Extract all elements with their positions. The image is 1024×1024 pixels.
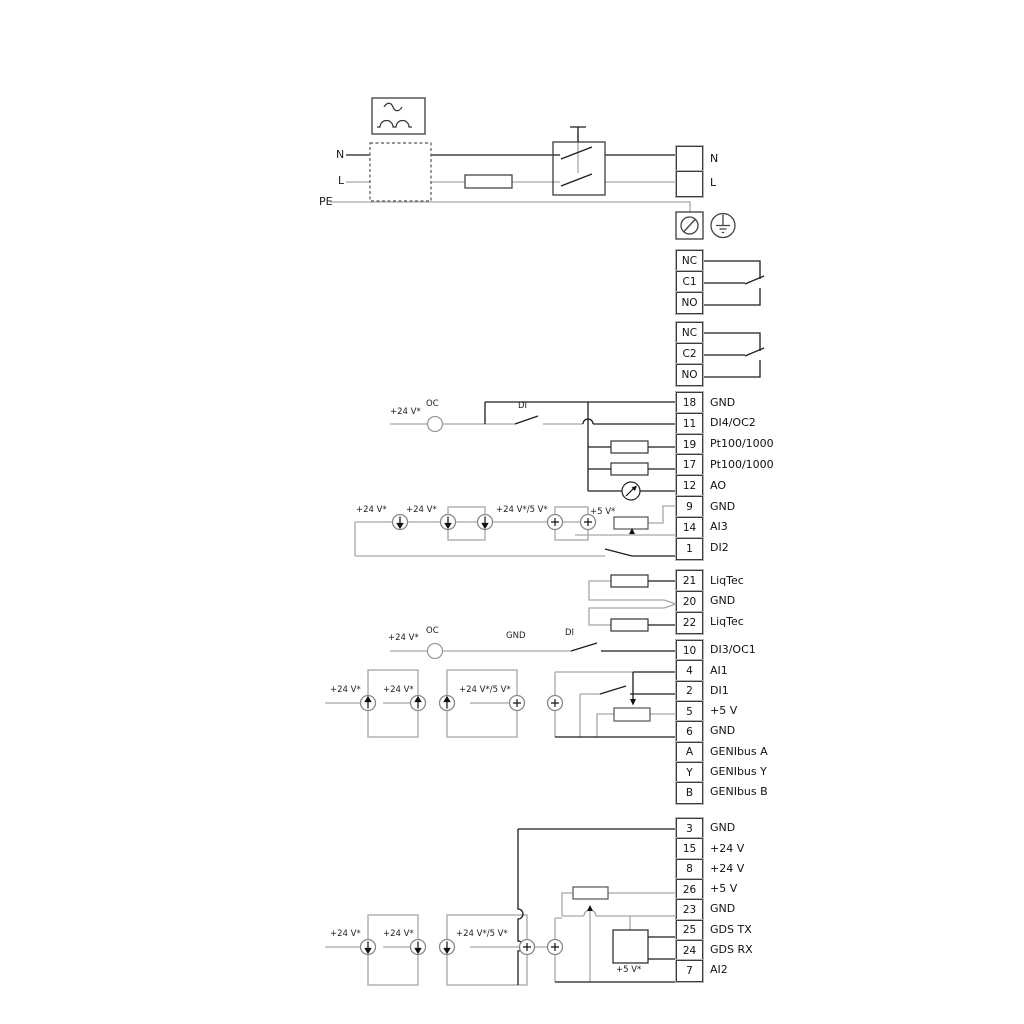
terminal-cell-io2-7: B <box>676 782 703 804</box>
label-24v-ai1-2: +24 V* <box>383 685 414 695</box>
terminal-label-io2-4: GND <box>710 720 735 742</box>
terminal-cell-io1-6: 14 <box>676 517 703 539</box>
terminal-label-io2-6: GENIbus Y <box>710 761 767 783</box>
terminal-label-io3-7: AI2 <box>710 959 728 981</box>
terminal-cell-io1-1: 11 <box>676 413 703 435</box>
pt100-resistor-icon <box>611 463 648 475</box>
terminal-label-io1-4: AO <box>710 474 726 496</box>
analog-output-meter-icon <box>622 482 640 500</box>
terminal-cell-relay1-2: NO <box>676 292 703 314</box>
terminal-cell-io2-2: 2 <box>676 681 703 703</box>
terminal-cell-io3-3: 26 <box>676 879 703 901</box>
label-pe-left: PE <box>319 195 333 208</box>
wiring-diagram: N L PE +24 V* OC DI +24 V* +24 V* +24 V*… <box>0 0 1024 1024</box>
terminal-cell-liqtec-2: 22 <box>676 612 703 634</box>
terminal-label-io2-2: DI1 <box>710 680 729 702</box>
terminal-cell-nl-0 <box>676 146 703 172</box>
terminal-cell-io1-2: 19 <box>676 434 703 456</box>
terminal-cell-io3-1: 15 <box>676 838 703 860</box>
terminal-label-io2-5: GENIbus A <box>710 741 768 763</box>
terminal-label-io3-3: +5 V <box>710 878 737 900</box>
supply-unit-dashed-box <box>370 143 431 201</box>
terminal-label-io3-5: GDS TX <box>710 919 752 941</box>
terminal-cell-io1-4: 12 <box>676 475 703 497</box>
terminal-block-relay1: NCC1NO <box>676 250 703 314</box>
terminal-label-io1-7: DI2 <box>710 537 729 559</box>
terminal-label-io1-5: GND <box>710 495 735 517</box>
terminal-label-io3-2: +24 V <box>710 858 744 880</box>
terminal-cell-relay2-2: NO <box>676 364 703 386</box>
terminal-label-io3-4: GND <box>710 898 735 920</box>
terminal-cell-nl-1 <box>676 171 703 197</box>
terminal-cell-io2-6: Y <box>676 762 703 784</box>
terminal-cell-relay2-1: C2 <box>676 343 703 365</box>
ai2-potentiometer-icon <box>573 887 608 911</box>
terminal-cell-io2-1: 4 <box>676 660 703 682</box>
terminal-label-liqtec-0: LiqTec <box>710 569 744 591</box>
label-24v-di3: +24 V* <box>388 633 419 643</box>
label-24v-ai1-1: +24 V* <box>330 685 361 695</box>
terminal-cell-io3-7: 7 <box>676 960 703 982</box>
terminal-cell-io3-5: 25 <box>676 920 703 942</box>
label-oc2: OC <box>426 399 439 409</box>
terminal-label-io2-3: +5 V <box>710 700 737 722</box>
label-5v-ai3: +5 V* <box>590 507 615 517</box>
label-24v-ai3-2: +24 V* <box>406 505 437 515</box>
terminal-label-io1-3: Pt100/1000 <box>710 453 774 475</box>
terminal-cell-relay2-0: NC <box>676 322 703 344</box>
terminal-block-io1: 18GND11DI4/OC219Pt100/100017Pt100/100012… <box>676 392 703 560</box>
label-n-left: N <box>336 148 344 161</box>
fuse-icon <box>465 175 512 188</box>
ac-converter-icon <box>372 98 425 134</box>
terminal-cell-io1-7: 1 <box>676 538 703 560</box>
label-24v-ai2-1: +24 V* <box>330 929 361 939</box>
ai3-potentiometer-icon <box>614 517 648 534</box>
terminal-label-io2-1: AI1 <box>710 659 728 681</box>
terminal-cell-io2-0: 10 <box>676 640 703 662</box>
protective-earth-icon <box>711 214 735 238</box>
terminal-label-io3-1: +24 V <box>710 837 744 859</box>
label-l-left: L <box>338 174 344 187</box>
label-24v5v-ai1: +24 V*/5 V* <box>459 685 511 695</box>
gray-wires <box>325 131 690 985</box>
terminal-cell-io1-3: 17 <box>676 454 703 476</box>
terminal-label-io2-7: GENIbus B <box>710 781 768 803</box>
gds-sensor-box <box>613 930 648 963</box>
ai1-potentiometer-icon <box>614 699 650 721</box>
terminal-cell-relay1-1: C1 <box>676 271 703 293</box>
terminal-label-io1-0: GND <box>710 391 735 413</box>
terminal-cell-liqtec-0: 21 <box>676 570 703 592</box>
terminal-label-liqtec-2: LiqTec <box>710 611 744 633</box>
earth-screw-icon <box>676 212 703 239</box>
terminal-cell-io3-6: 24 <box>676 940 703 962</box>
terminal-block-relay2: NCC2NO <box>676 322 703 386</box>
terminal-label-io3-0: GND <box>710 817 735 839</box>
terminal-cell-io2-3: 5 <box>676 701 703 723</box>
label-24v5v-ai3: +24 V*/5 V* <box>496 505 548 515</box>
terminal-label-io3-6: GDS RX <box>710 939 753 961</box>
pt100-resistor-icon <box>611 441 648 453</box>
terminal-cell-io2-4: 6 <box>676 721 703 743</box>
terminal-cell-io2-5: A <box>676 742 703 764</box>
terminal-cell-io1-0: 18 <box>676 392 703 414</box>
terminal-cell-io1-5: 9 <box>676 496 703 518</box>
terminal-label-nl-1: L <box>710 170 716 196</box>
mains-switch-box <box>553 142 605 195</box>
terminal-block-mains: NL <box>676 146 703 197</box>
liqtec-sensor-icon <box>611 619 648 631</box>
terminal-label-io1-2: Pt100/1000 <box>710 433 774 455</box>
terminal-cell-io3-0: 3 <box>676 818 703 840</box>
label-oc1: OC <box>426 626 439 636</box>
terminal-label-io1-1: DI4/OC2 <box>710 412 756 434</box>
liqtec-sensor-icon <box>611 575 648 587</box>
terminal-cell-liqtec-1: 20 <box>676 591 703 613</box>
label-24v-ai3-1: +24 V* <box>356 505 387 515</box>
label-di3: DI <box>565 628 574 638</box>
terminal-block-io2: 10DI3/OC14AI12DI15+5 V6GNDAGENIbus AYGEN… <box>676 640 703 804</box>
label-24v-di4: +24 V* <box>390 407 421 417</box>
label-24v-ai2-2: +24 V* <box>383 929 414 939</box>
label-di4: DI <box>518 401 527 411</box>
terminal-label-io1-6: AI3 <box>710 516 728 538</box>
label-gnd-di3: GND <box>506 631 526 641</box>
terminal-label-nl-0: N <box>710 145 718 171</box>
terminal-cell-io3-4: 23 <box>676 899 703 921</box>
terminal-block-io3: 3GND15+24 V8+24 V26+5 V23GND25GDS TX24GD… <box>676 818 703 982</box>
oc1-circle-icon <box>428 644 443 659</box>
terminal-label-io2-0: DI3/OC1 <box>710 639 756 661</box>
terminal-label-liqtec-1: GND <box>710 590 735 612</box>
terminal-block-liqtec: 21LiqTec20GND22LiqTec <box>676 570 703 634</box>
terminal-cell-relay1-0: NC <box>676 250 703 272</box>
oc2-circle-icon <box>428 417 443 432</box>
terminal-cell-io3-2: 8 <box>676 859 703 881</box>
label-5v-gds: +5 V* <box>616 965 641 975</box>
label-24v5v-ai2: +24 V*/5 V* <box>456 929 508 939</box>
